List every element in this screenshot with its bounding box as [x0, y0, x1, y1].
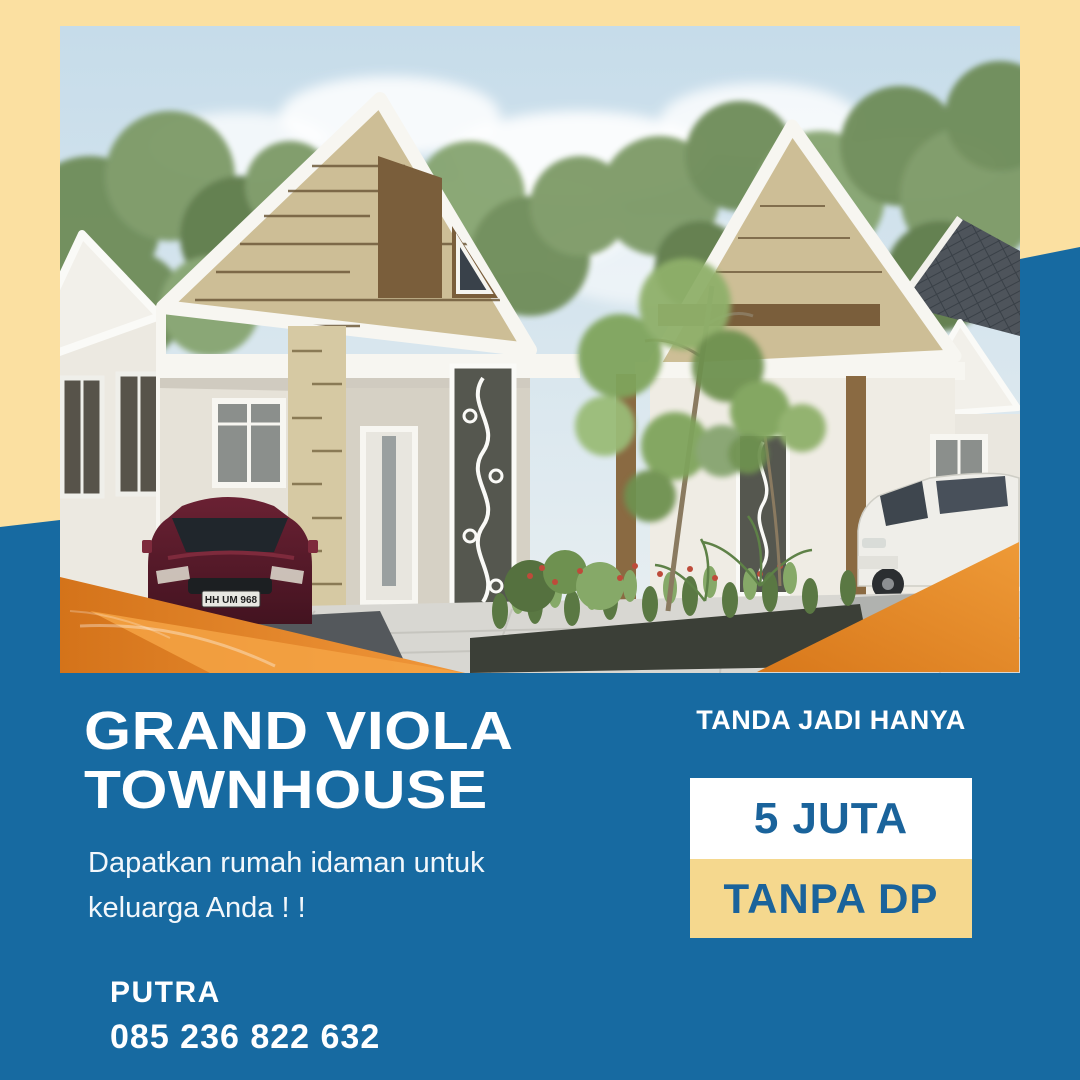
license-plate: HH UM 968: [202, 591, 260, 607]
subtitle-line-1: Dapatkan rumah idaman untuk: [88, 841, 485, 886]
lattice-panel-left: [452, 366, 514, 614]
subtitle-line-2: keluarga Anda ! !: [88, 886, 485, 931]
agent-name: PUTRA: [110, 976, 221, 1010]
flyer-poster: HH UM 968 GRAND VIOLA TOWNHOUSE Dapatkan…: [0, 0, 1080, 1080]
svg-text:HH UM 968: HH UM 968: [205, 595, 258, 606]
title-line-1: GRAND VIOLA: [84, 702, 514, 761]
subtitle: Dapatkan rumah idaman untuk keluarga And…: [88, 841, 485, 931]
price-box: 5 JUTA: [690, 778, 972, 859]
hero-photo: HH UM 968: [60, 26, 1020, 673]
page-title: GRAND VIOLA TOWNHOUSE: [84, 702, 514, 820]
down-payment-text: TANPA DP: [724, 875, 939, 923]
promo-label: TANDA JADI HANYA: [660, 705, 1002, 736]
down-payment-box: TANPA DP: [690, 859, 972, 938]
price-text: 5 JUTA: [754, 794, 908, 844]
house-render-illustration: HH UM 968: [60, 26, 1020, 673]
agent-phone: 085 236 822 632: [110, 1018, 380, 1057]
title-line-2: TOWNHOUSE: [84, 761, 514, 820]
